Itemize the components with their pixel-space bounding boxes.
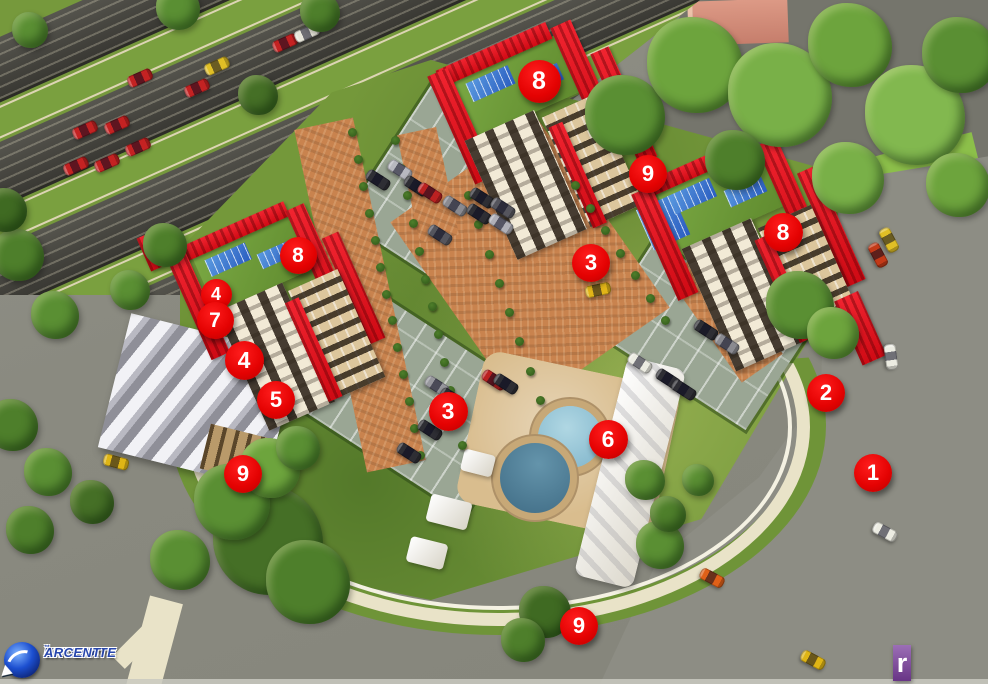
tree <box>812 142 884 214</box>
tree <box>31 291 79 339</box>
palm-tree <box>485 250 494 259</box>
palm-tree <box>646 294 655 303</box>
globe-flag-icon <box>1 665 14 680</box>
palm-tree <box>382 290 391 299</box>
palm-tree <box>458 441 467 450</box>
palm-tree <box>405 397 414 406</box>
palm-tree <box>354 155 363 164</box>
trademark-symbol: ™ <box>44 645 50 651</box>
palm-tree <box>434 330 443 339</box>
palm-tree <box>536 396 545 405</box>
palm-tree <box>495 279 504 288</box>
tree <box>682 464 714 496</box>
palm-tree <box>661 316 670 325</box>
marker-7[interactable]: 7 <box>197 302 234 339</box>
palm-tree <box>391 136 400 145</box>
marker-9[interactable]: 9 <box>629 155 667 193</box>
palm-tree <box>376 263 385 272</box>
palm-tree <box>440 358 449 367</box>
tree <box>238 75 278 115</box>
tree <box>650 496 686 532</box>
marker-8[interactable]: 8 <box>280 237 317 274</box>
tree <box>70 480 114 524</box>
tree <box>807 307 859 359</box>
swimming-pool-deep <box>500 443 570 513</box>
marker-8[interactable]: 8 <box>764 213 803 252</box>
tree <box>143 223 187 267</box>
estar-letter-r: r <box>893 645 911 681</box>
tree <box>501 618 545 662</box>
marker-2[interactable]: 2 <box>807 374 845 412</box>
globe-icon <box>4 642 40 678</box>
aerial-site-plan-render: 893884745236919 ENTERATE™ ARCENT™ estar <box>0 0 988 684</box>
marker-1[interactable]: 1 <box>854 454 892 492</box>
palm-tree <box>526 367 535 376</box>
marker-8[interactable]: 8 <box>518 60 561 103</box>
marker-4[interactable]: 4 <box>225 341 264 380</box>
palm-tree <box>631 271 640 280</box>
palm-tree <box>601 226 610 235</box>
enterate-logo: ENTERATE™ ARCENT™ <box>4 642 154 682</box>
marker-3[interactable]: 3 <box>429 392 468 431</box>
palm-tree <box>371 236 380 245</box>
tree <box>12 12 48 48</box>
tree <box>625 460 665 500</box>
palm-tree <box>586 204 595 213</box>
palm-tree <box>428 302 437 311</box>
palm-tree <box>616 249 625 258</box>
tree <box>24 448 72 496</box>
tree <box>6 506 54 554</box>
marker-5[interactable]: 5 <box>257 381 295 419</box>
tree <box>926 153 988 217</box>
palm-tree <box>365 209 374 218</box>
tree <box>110 270 150 310</box>
marker-3[interactable]: 3 <box>572 244 610 282</box>
palm-tree <box>348 128 357 137</box>
tree <box>808 3 892 87</box>
tree <box>705 130 765 190</box>
marker-6[interactable]: 6 <box>589 420 628 459</box>
tree <box>276 426 320 470</box>
marker-9[interactable]: 9 <box>224 455 262 493</box>
palm-tree <box>571 181 580 190</box>
tree <box>266 540 350 624</box>
tree <box>150 530 210 590</box>
marker-9[interactable]: 9 <box>560 607 598 645</box>
